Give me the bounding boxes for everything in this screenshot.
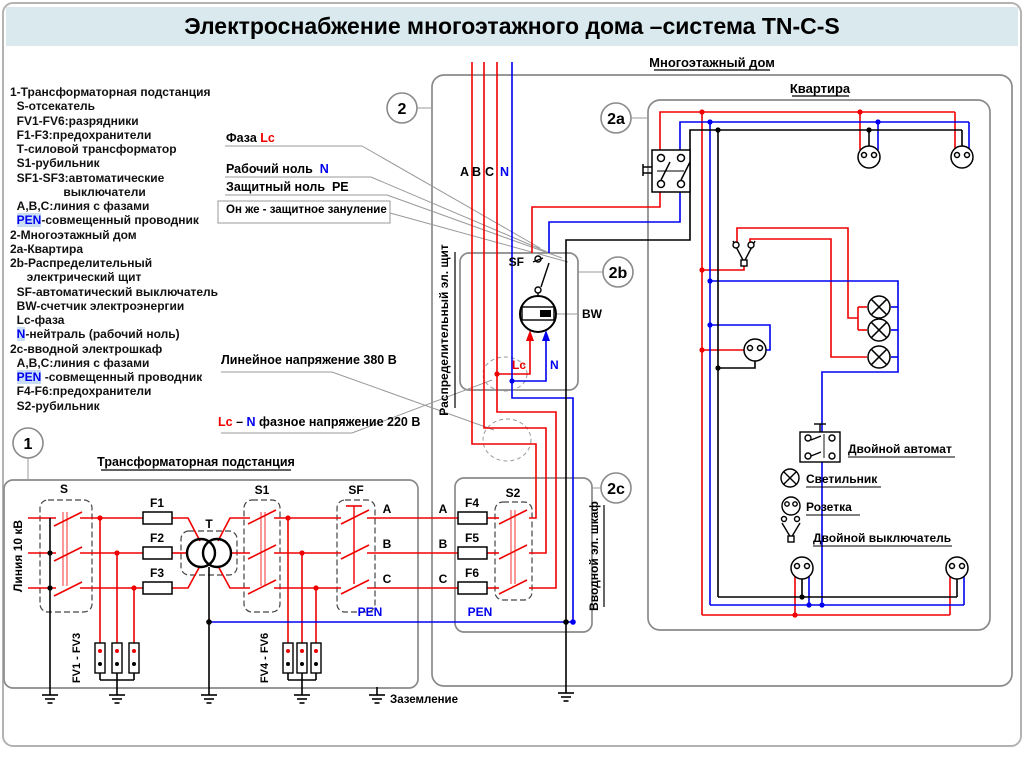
text-segment: Линейное напряжение 380 В — [221, 353, 397, 367]
callout-phase: Фаза Lc — [226, 131, 275, 145]
socket-icon — [858, 146, 880, 168]
text-segment — [10, 370, 17, 384]
svg-text:SF: SF — [348, 483, 363, 497]
svg-text:F3: F3 — [150, 566, 164, 580]
svg-text:T: T — [205, 517, 213, 531]
legend-line: SF-автоматический выключатель — [10, 285, 240, 299]
slide: 1 2 2a 2b 2c Многоэтажный дом Квартира Т… — [0, 0, 1024, 767]
ground-symbols — [42, 693, 574, 703]
text-segment: -совмещенный проводник — [41, 213, 199, 227]
text-segment: 2с-вводной электрошкаф — [10, 342, 162, 356]
apt-legend-lamp: Светильник — [806, 472, 878, 486]
page-title: Электроснабжение многоэтажного дома –сис… — [6, 7, 1018, 46]
input-cabinet-label: Вводной эл. шкаф — [587, 501, 601, 611]
text-segment: 2а-Квартира — [10, 242, 83, 256]
legend-line: S1-рубильник — [10, 156, 240, 170]
text-segment: BW-счетчик электроэнергии — [10, 299, 184, 313]
socket-icon — [791, 557, 813, 579]
svg-text:F1: F1 — [150, 496, 164, 510]
sf-breaker-symbol — [533, 256, 549, 296]
text-segment: PEN — [17, 370, 42, 384]
text-segment: N — [320, 162, 329, 176]
lamp-legend-icon — [781, 469, 799, 487]
svg-text:B: B — [439, 537, 448, 551]
text-segment: Lc-фаза — [10, 313, 64, 327]
text-segment: N — [247, 415, 256, 429]
svg-text:FV1 - FV3: FV1 - FV3 — [71, 633, 83, 683]
callout-protective-neutral: Защитный ноль PE — [226, 180, 349, 194]
lamp-icon — [868, 319, 890, 341]
svg-text:2: 2 — [398, 101, 407, 118]
svg-text:B: B — [472, 165, 481, 179]
highlight-380v — [483, 419, 531, 461]
legend-line: А,В,С:линия с фазами — [10, 356, 240, 370]
svg-text:F6: F6 — [465, 566, 479, 580]
substation-box — [4, 480, 418, 688]
legend-line: 2b-Распределительный — [10, 256, 240, 270]
fuse-f4 — [458, 512, 487, 524]
svg-text:N: N — [550, 358, 559, 372]
callout-line-voltage: Линейное напряжение 380 В — [221, 353, 397, 367]
text-segment: Т-силовой трансформатор — [10, 142, 177, 156]
lamps — [868, 296, 890, 368]
legend-line: F4-F6:предохранители — [10, 384, 240, 398]
legend-line: электрический щит — [10, 270, 240, 284]
building-label: Многоэтажный дом — [649, 55, 775, 70]
legend-line: 1-Трансформаторная подстанция — [10, 85, 240, 99]
text-segment: 2-Многоэтажный дом — [10, 228, 137, 242]
svg-text:B: B — [383, 537, 392, 551]
svg-text:N: N — [500, 165, 509, 179]
legend-line: S2-рубильник — [10, 399, 240, 413]
text-segment: выключатели — [10, 185, 146, 199]
socket-icon — [744, 339, 766, 361]
apartment-label: Квартира — [790, 81, 851, 96]
text-segment: S-отсекатель — [10, 99, 95, 113]
svg-text:2a: 2a — [607, 111, 625, 128]
lamp-icon — [868, 346, 890, 368]
legend-line: FV1-FV6:разрядники — [10, 114, 240, 128]
legend-line: SF1-SF3:автоматические — [10, 171, 240, 185]
legend-line: 2с-вводной электрошкаф — [10, 342, 240, 356]
text-segment: -нейтраль (рабочий ноль) — [25, 327, 179, 341]
svg-text:F5: F5 — [465, 531, 479, 545]
svg-text:S2: S2 — [506, 486, 521, 500]
apartment-box — [648, 100, 990, 630]
legend-line: PEN-совмещенный проводник — [10, 213, 240, 227]
sockets — [744, 146, 973, 579]
text-segment: FV1-FV6:разрядники — [10, 114, 139, 128]
svg-text:C: C — [485, 165, 494, 179]
svg-text:S1: S1 — [255, 483, 270, 497]
text-segment: -совмещенный проводник — [41, 370, 202, 384]
apt-legend-breaker: Двойной автомат — [848, 442, 952, 456]
legend-line: F1-F3:предохранители — [10, 128, 240, 142]
socket-icon — [946, 557, 968, 579]
svg-text:F4: F4 — [465, 496, 479, 510]
text-segment: SF-автоматический выключатель — [10, 285, 218, 299]
text-segment: 1-Трансформаторная подстанция — [10, 85, 210, 99]
line10kv-label: Линия 10 кВ — [11, 520, 25, 592]
legend-panel: 1-Трансформаторная подстанция S-отсекате… — [10, 85, 240, 413]
text-segment: S1-рубильник — [10, 156, 100, 170]
svg-text:2c: 2c — [607, 481, 625, 498]
text-segment: SF1-SF3:автоматические — [10, 171, 164, 185]
text-segment: 2b-Распределительный — [10, 256, 152, 270]
callout-protective-grounding: Он же - защитное зануление — [226, 204, 387, 216]
text-segment — [10, 213, 17, 227]
svg-text:C: C — [383, 572, 392, 586]
callout-phase-voltage: Lc – N фазное напряжение 220 В — [218, 415, 420, 429]
bw-meter — [520, 296, 556, 332]
svg-text:C: C — [439, 572, 448, 586]
legend-line: 2-Многоэтажный дом — [10, 228, 240, 242]
text-segment: – — [233, 415, 247, 429]
legend-line: S-отсекатель — [10, 99, 240, 113]
apt-legend-socket: Розетка — [806, 500, 852, 514]
legend-line: А,В,С:линия с фазами — [10, 199, 240, 213]
text-segment: электрический щит — [10, 270, 141, 284]
text-segment: PEN — [17, 213, 42, 227]
text-segment: F1-F3:предохранители — [10, 128, 151, 142]
text-segment: Lc — [218, 415, 233, 429]
legend-line: N-нейтраль (рабочий ноль) — [10, 327, 240, 341]
pen-label: PEN — [358, 605, 383, 619]
fuse-f6 — [458, 582, 487, 594]
legend-line: BW-счетчик электроэнергии — [10, 299, 240, 313]
svg-text:FV4 - FV6: FV4 - FV6 — [259, 633, 271, 683]
fuse-f1 — [143, 512, 172, 524]
text-segment: Рабочий ноль — [226, 162, 320, 176]
legend-line: 2а-Квартира — [10, 242, 240, 256]
svg-text:S: S — [60, 482, 68, 496]
svg-text:BW: BW — [582, 307, 603, 321]
legend-line: PEN -совмещенный проводник — [10, 370, 240, 384]
socket-legend-icon — [782, 497, 800, 515]
svg-text:A: A — [460, 165, 469, 179]
double-breaker — [643, 150, 690, 192]
callout-working-neutral: Рабочий ноль N — [226, 162, 329, 176]
svg-text:1: 1 — [24, 436, 33, 453]
dist-panel-label: Распределительный эл. щит — [437, 244, 451, 416]
svg-text:A: A — [383, 502, 392, 516]
switch-legend-icon — [782, 517, 801, 543]
text-segment — [10, 327, 17, 341]
pen-label: PEN — [468, 605, 493, 619]
legend-line: выключатели — [10, 185, 240, 199]
text-segment: Защитный ноль PE — [226, 180, 349, 194]
text-segment: А,В,С:линия с фазами — [10, 356, 149, 370]
fuse-f3 — [143, 582, 172, 594]
apt-legend-switch: Двойной выключатель — [813, 531, 951, 545]
s-box — [40, 500, 92, 612]
text-segment: фазное напряжение 220 В — [256, 415, 421, 429]
text-segment: S2-рубильник — [10, 399, 100, 413]
text-segment: Lc — [260, 131, 275, 145]
transformer — [187, 539, 231, 567]
svg-text:SF: SF — [509, 255, 524, 269]
surge-arresters — [95, 643, 321, 673]
svg-text:A: A — [439, 502, 448, 516]
substation-label: Трансформаторная подстанция — [97, 455, 295, 469]
grounding-label: Заземление — [390, 694, 458, 706]
text-segment: F4-F6:предохранители — [10, 384, 151, 398]
double-switch — [733, 241, 755, 266]
socket-icon — [951, 146, 973, 168]
fuse-f2 — [143, 547, 172, 559]
svg-text:Lc: Lc — [512, 358, 526, 372]
legend-line: Т-силовой трансформатор — [10, 142, 240, 156]
svg-text:F2: F2 — [150, 531, 164, 545]
text-segment: А,В,С:линия с фазами — [10, 199, 149, 213]
fuse-f5 — [458, 547, 487, 559]
text-segment: Фаза — [226, 131, 260, 145]
legend-line: Lc-фаза — [10, 313, 240, 327]
svg-text:2b: 2b — [609, 265, 628, 282]
lamp-icon — [868, 296, 890, 318]
text-segment: Он же - защитное зануление — [226, 204, 387, 216]
